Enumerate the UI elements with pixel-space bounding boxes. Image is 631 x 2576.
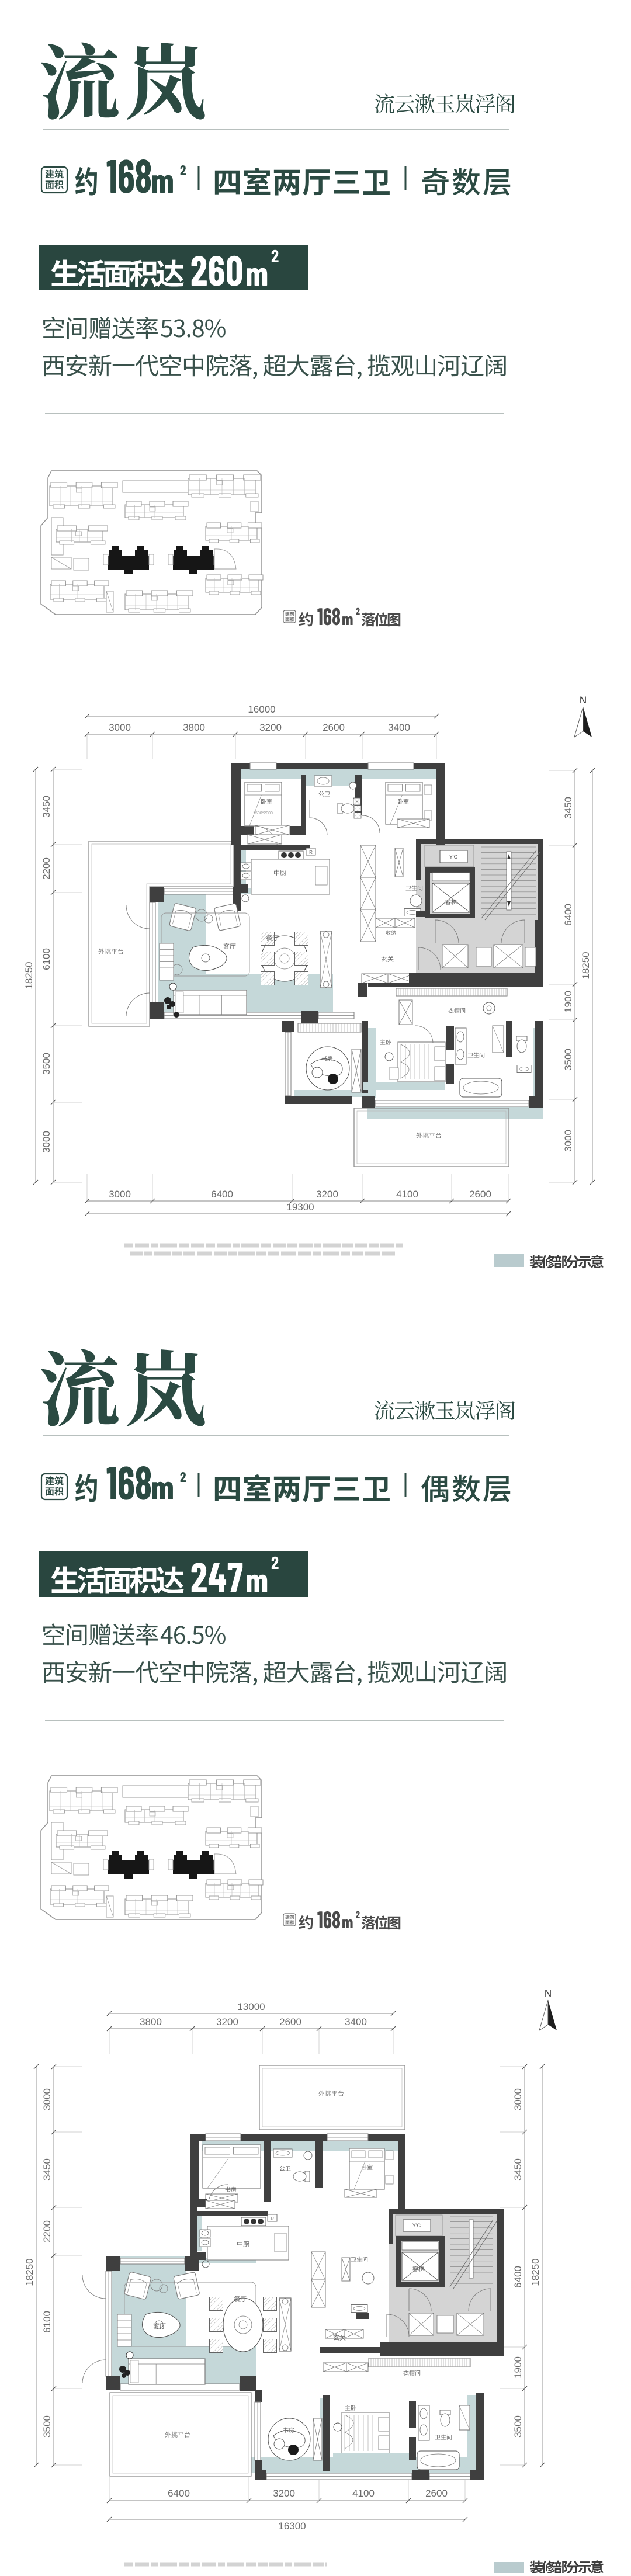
svg-text:2200: 2200: [41, 857, 52, 880]
svg-text:2600: 2600: [279, 2016, 301, 2028]
svg-text:N: N: [580, 695, 587, 706]
svg-text:1500*2000: 1500*2000: [253, 811, 273, 815]
svg-text:3400: 3400: [388, 722, 410, 733]
svg-text:3450: 3450: [563, 797, 574, 819]
svg-text:3000: 3000: [41, 1131, 52, 1153]
svg-text:3000: 3000: [563, 1130, 574, 1152]
svg-text:3000: 3000: [512, 2088, 523, 2110]
svg-text:18250: 18250: [530, 2258, 541, 2286]
svg-text:3200: 3200: [316, 1189, 338, 1200]
svg-text:6400: 6400: [211, 1189, 233, 1200]
svg-text:6400: 6400: [512, 2266, 523, 2288]
svg-text:2200: 2200: [41, 2220, 53, 2242]
svg-text:18250: 18250: [23, 961, 34, 989]
svg-text:18250: 18250: [580, 952, 591, 979]
svg-text:19300: 19300: [286, 1202, 314, 1213]
svg-text:6100: 6100: [41, 2311, 53, 2333]
svg-text:1900: 1900: [512, 2356, 523, 2379]
svg-text:4100: 4100: [352, 2488, 375, 2499]
svg-text:3800: 3800: [183, 722, 205, 733]
svg-text:3000: 3000: [109, 1189, 131, 1200]
svg-text:3400: 3400: [345, 2016, 367, 2028]
svg-text:3500: 3500: [563, 1049, 574, 1071]
svg-text:Y'C: Y'C: [449, 854, 458, 860]
svg-text:6100: 6100: [41, 948, 52, 970]
svg-text:1900: 1900: [563, 991, 574, 1013]
svg-text:3450: 3450: [41, 2158, 53, 2181]
svg-text:6400: 6400: [563, 904, 574, 926]
svg-text:R: R: [271, 2216, 274, 2221]
svg-text:3500: 3500: [512, 2415, 523, 2438]
svg-text:3450: 3450: [41, 796, 52, 818]
svg-text:3200: 3200: [216, 2016, 238, 2028]
svg-text:3450: 3450: [512, 2158, 523, 2181]
svg-text:4100: 4100: [396, 1189, 418, 1200]
svg-text:16000: 16000: [248, 704, 275, 715]
svg-text:3500: 3500: [41, 2415, 53, 2438]
svg-text:N: N: [545, 1988, 552, 1999]
svg-text:2600: 2600: [323, 722, 345, 733]
svg-text:2600: 2600: [425, 2488, 448, 2499]
svg-text:3000: 3000: [109, 722, 131, 733]
svg-text:2600: 2600: [469, 1189, 491, 1200]
svg-text:16300: 16300: [278, 2521, 306, 2532]
svg-text:Y'C: Y'C: [412, 2223, 421, 2228]
svg-text:3200: 3200: [259, 722, 282, 733]
svg-text:3500: 3500: [41, 1053, 52, 1075]
svg-text:18250: 18250: [24, 2258, 35, 2286]
svg-text:3200: 3200: [273, 2488, 295, 2499]
svg-text:3800: 3800: [140, 2016, 162, 2028]
svg-text:6400: 6400: [168, 2488, 190, 2499]
svg-text:13000: 13000: [237, 2001, 265, 2012]
svg-text:R: R: [309, 850, 313, 855]
svg-text:3000: 3000: [41, 2088, 53, 2110]
